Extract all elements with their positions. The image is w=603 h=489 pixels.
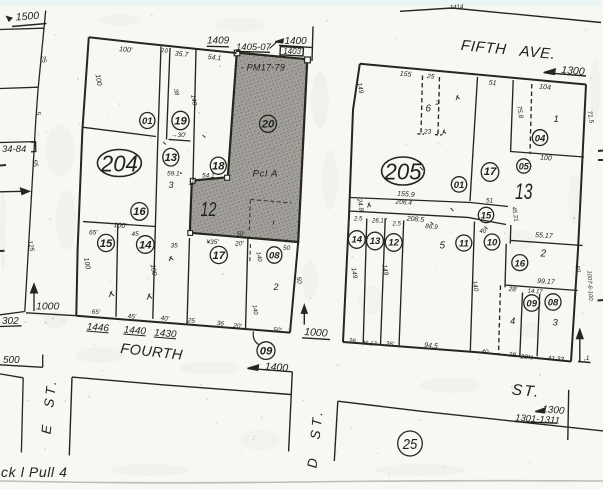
svg-text:1400: 1400 [264, 361, 288, 375]
svg-text:09: 09 [526, 299, 537, 310]
svg-text:25: 25 [426, 73, 435, 81]
svg-text:13: 13 [515, 179, 533, 204]
svg-text:14: 14 [139, 239, 152, 251]
svg-text:1000: 1000 [304, 326, 328, 340]
svg-text:01: 01 [142, 116, 153, 127]
svg-text:14: 14 [352, 235, 363, 246]
svg-text:20′: 20′ [232, 322, 243, 330]
svg-text:1430: 1430 [154, 328, 178, 341]
svg-text:20½: 20½ [519, 352, 534, 361]
svg-text:45′: 45′ [127, 313, 137, 321]
svg-text:26.17: 26.17 [371, 219, 388, 225]
svg-text:,1: ,1 [584, 355, 590, 362]
svg-text:100′: 100′ [113, 222, 127, 230]
svg-text:ck l Pull 4: ck l Pull 4 [1, 464, 68, 480]
svg-text:205: 205 [384, 159, 423, 185]
svg-text:104: 104 [539, 84, 551, 92]
svg-text:10: 10 [487, 238, 498, 249]
svg-text:11: 11 [459, 239, 469, 250]
svg-text:500: 500 [3, 355, 20, 366]
svg-text:2: 2 [435, 100, 440, 107]
svg-text:15: 15 [481, 211, 492, 222]
svg-text:13: 13 [165, 152, 178, 164]
svg-text:100: 100 [540, 155, 552, 163]
svg-text:1400: 1400 [285, 36, 308, 47]
svg-text:3: 3 [553, 318, 559, 329]
svg-text:04: 04 [535, 133, 546, 144]
svg-text:1405-07: 1405-07 [236, 42, 272, 53]
svg-text:28: 28 [507, 351, 516, 359]
svg-text:155: 155 [399, 71, 411, 79]
svg-text:26: 26 [347, 337, 356, 345]
svg-text:15: 15 [100, 238, 113, 250]
svg-text:86.9: 86.9 [425, 223, 439, 231]
svg-text:100′: 100′ [119, 46, 133, 54]
svg-text:¥35′: ¥35′ [207, 239, 220, 246]
svg-text:1414: 1414 [450, 4, 464, 11]
svg-text:13: 13 [370, 236, 381, 247]
svg-text:1403: 1403 [283, 47, 301, 56]
svg-text:09: 09 [260, 345, 273, 357]
svg-text:17: 17 [213, 250, 226, 262]
svg-text:19: 19 [174, 116, 187, 128]
svg-text:41.33: 41.33 [547, 355, 564, 363]
svg-text:12: 12 [388, 238, 399, 249]
svg-text:12: 12 [201, 199, 217, 221]
svg-text:1446: 1446 [86, 322, 110, 335]
svg-text:1: 1 [554, 114, 559, 125]
svg-text:→30′: →30′ [171, 132, 187, 139]
svg-text:05: 05 [519, 162, 530, 172]
svg-text:20′: 20′ [234, 241, 244, 248]
svg-text:08: 08 [548, 298, 559, 309]
svg-text:3: 3 [169, 180, 174, 190]
svg-text:59.1•: 59.1• [167, 171, 183, 178]
svg-text:65′: 65′ [89, 230, 98, 237]
svg-text:AVE.: AVE. [518, 43, 557, 63]
svg-text:1440: 1440 [123, 325, 147, 338]
svg-text:26′: 26′ [384, 340, 395, 348]
svg-text:40: 40 [481, 349, 489, 357]
svg-text:17: 17 [484, 166, 497, 178]
svg-text:23: 23 [423, 129, 432, 136]
svg-text:28′: 28′ [507, 286, 518, 294]
svg-text:40: 40 [480, 229, 487, 235]
svg-text:1300: 1300 [561, 64, 585, 78]
svg-text:16: 16 [133, 206, 146, 218]
svg-text:2.5: 2.5 [392, 222, 402, 228]
svg-text:55.17: 55.17 [535, 232, 554, 240]
svg-text:Pcl A: Pcl A [253, 169, 279, 180]
svg-text:51: 51 [488, 80, 497, 88]
svg-text:14.17: 14.17 [527, 289, 543, 296]
svg-text:6: 6 [426, 104, 432, 115]
svg-text:2: 2 [273, 282, 279, 292]
svg-text:4: 4 [510, 316, 515, 327]
svg-text:36: 36 [216, 320, 224, 328]
svg-text:01: 01 [454, 180, 465, 191]
svg-text:ST.: ST. [511, 382, 541, 401]
svg-text:10: 10 [189, 181, 196, 187]
svg-text:65′: 65′ [91, 309, 101, 317]
svg-text:25: 25 [186, 317, 195, 325]
svg-text:94.5: 94.5 [424, 342, 438, 350]
svg-text:25: 25 [402, 436, 418, 453]
svg-text:34-84: 34-84 [2, 144, 26, 155]
svg-text:35: 35 [171, 243, 179, 250]
svg-text:1409: 1409 [207, 36, 230, 47]
svg-text:45: 45 [132, 231, 140, 238]
svg-text:- PM17-79: - PM17-79 [241, 63, 286, 73]
svg-text:40′: 40′ [160, 315, 170, 323]
svg-text:16: 16 [515, 258, 526, 269]
svg-text:99.17: 99.17 [537, 278, 556, 286]
svg-text:20: 20 [261, 119, 275, 131]
svg-text:2.5: 2.5 [353, 217, 363, 223]
svg-text:50′: 50′ [273, 327, 283, 335]
svg-text:302: 302 [2, 316, 19, 327]
svg-text:50: 50 [283, 245, 291, 252]
svg-text:10: 10 [161, 48, 169, 55]
svg-text:54.1: 54.1 [207, 54, 221, 62]
svg-text:1000: 1000 [36, 301, 60, 313]
svg-text:18: 18 [212, 160, 225, 172]
svg-text:5: 5 [440, 241, 446, 252]
svg-text:204: 204 [100, 151, 138, 177]
svg-text:51: 51 [486, 198, 494, 205]
svg-text:1500: 1500 [15, 10, 39, 24]
svg-text:54.1: 54.1 [202, 173, 215, 180]
svg-text:2: 2 [540, 249, 547, 260]
svg-text:08: 08 [269, 251, 280, 262]
